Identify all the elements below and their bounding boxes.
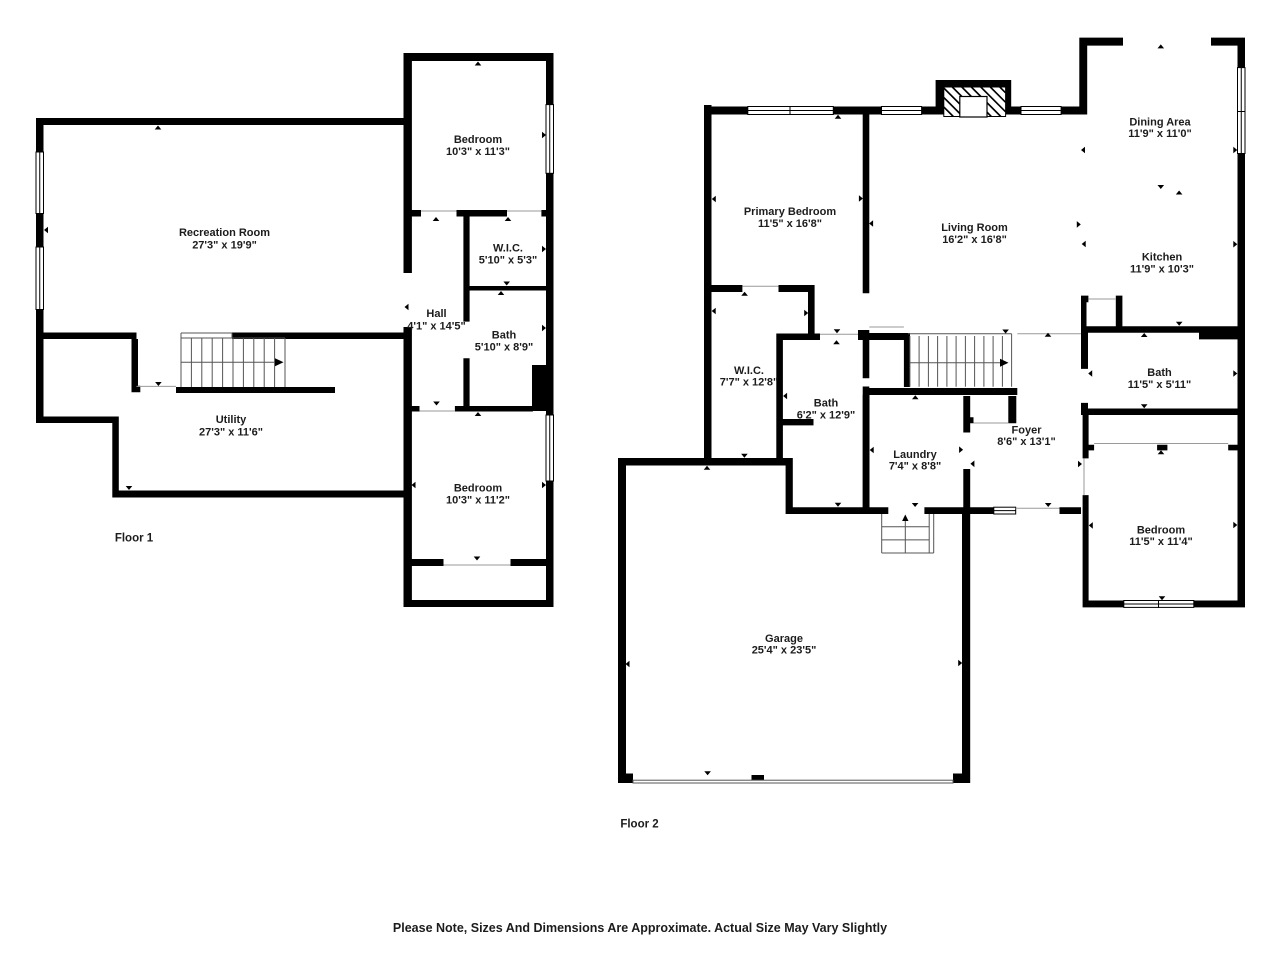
svg-text:Living Room: Living Room [941,222,1008,234]
svg-text:Kitchen: Kitchen [1142,252,1183,264]
svg-text:6'2" x 12'9": 6'2" x 12'9" [797,409,855,421]
svg-text:Bedroom: Bedroom [1137,524,1186,536]
svg-text:16'2" x 16'8": 16'2" x 16'8" [942,234,1007,246]
svg-text:7'7" x 12'8": 7'7" x 12'8" [720,377,778,389]
svg-text:27'3" x 19'9": 27'3" x 19'9" [192,239,257,251]
svg-text:Laundry: Laundry [893,449,937,461]
svg-text:Recreation Room: Recreation Room [179,227,270,239]
svg-text:Floor 2: Floor 2 [620,819,658,831]
svg-text:W.I.C.: W.I.C. [493,243,523,255]
svg-text:Garage: Garage [765,633,803,645]
svg-text:Bedroom: Bedroom [454,134,503,146]
svg-text:Bath: Bath [1147,367,1172,379]
svg-text:W.I.C.: W.I.C. [734,365,764,377]
svg-text:Please Note, Sizes And Dimensi: Please Note, Sizes And Dimensions Are Ap… [393,921,887,935]
svg-text:4'1" x 14'5": 4'1" x 14'5" [407,320,465,332]
svg-text:Foyer: Foyer [1012,425,1043,437]
svg-text:Bedroom: Bedroom [454,483,503,495]
svg-text:10'3" x 11'2": 10'3" x 11'2" [446,495,510,507]
svg-text:7'4" x 8'8": 7'4" x 8'8" [889,461,941,473]
svg-text:25'4" x 23'5": 25'4" x 23'5" [752,645,817,657]
svg-text:11'5" x 11'4": 11'5" x 11'4" [1129,536,1192,548]
svg-text:Hall: Hall [426,308,446,320]
svg-text:27'3" x 11'6": 27'3" x 11'6" [199,426,263,438]
svg-text:Floor 1: Floor 1 [115,533,154,545]
svg-text:11'5" x 5'11": 11'5" x 5'11" [1128,379,1191,391]
svg-text:Dining Area: Dining Area [1129,116,1191,128]
svg-text:Primary Bedroom: Primary Bedroom [744,206,837,218]
svg-text:10'3" x 11'3": 10'3" x 11'3" [446,146,510,158]
svg-text:Utility: Utility [216,414,247,426]
svg-text:Bath: Bath [492,329,517,341]
svg-text:11'9" x 10'3": 11'9" x 10'3" [1130,263,1194,275]
svg-text:5'10" x 5'3": 5'10" x 5'3" [479,254,537,266]
svg-text:Bath: Bath [814,398,839,410]
svg-text:5'10" x 8'9": 5'10" x 8'9" [475,341,533,353]
svg-text:8'6" x 13'1": 8'6" x 13'1" [997,436,1055,448]
svg-text:11'9" x 11'0": 11'9" x 11'0" [1128,128,1191,140]
svg-text:11'5" x 16'8": 11'5" x 16'8" [758,218,822,230]
